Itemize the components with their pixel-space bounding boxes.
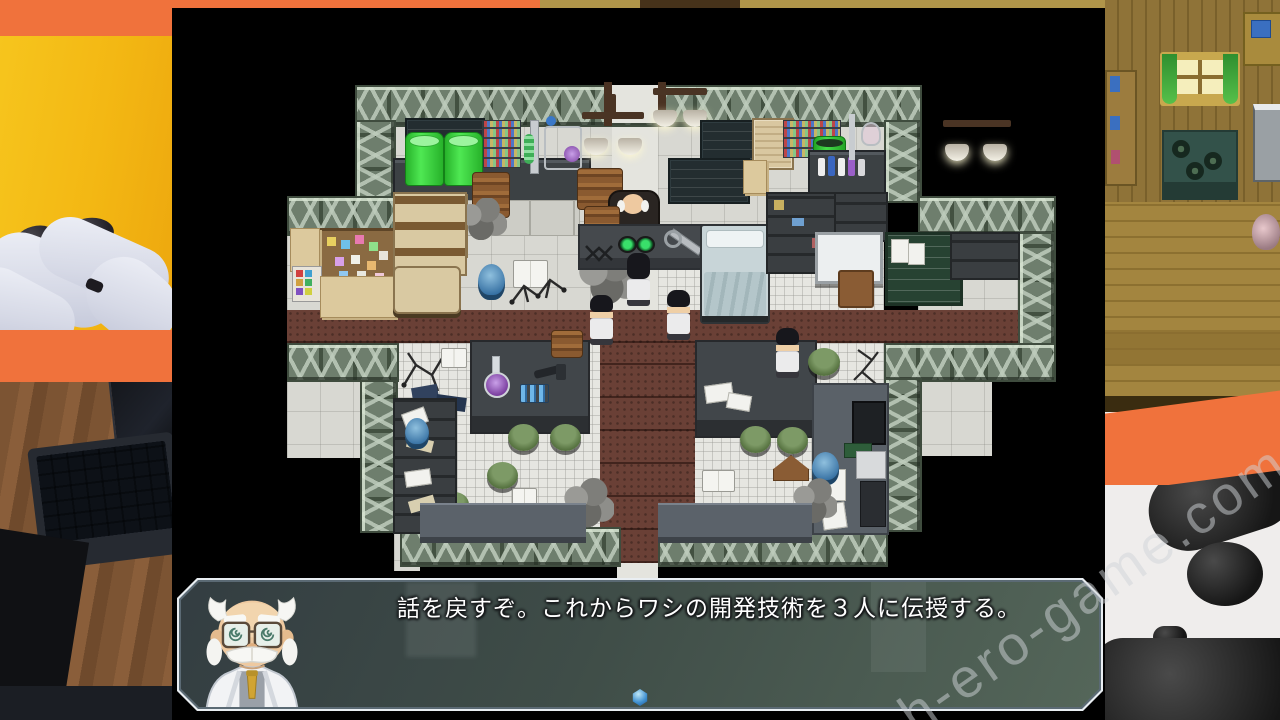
printer <box>856 451 886 479</box>
floor-left-patch <box>287 378 360 458</box>
laptop-photo <box>0 382 172 720</box>
flask-stand <box>845 114 881 166</box>
paper-pile <box>320 276 396 318</box>
bucket-2 <box>405 418 429 449</box>
window-panes <box>1176 60 1224 94</box>
retro-floor-shadow <box>1105 330 1280 364</box>
stool-6 <box>777 427 808 454</box>
top-strip-orange <box>0 0 540 8</box>
stool-2 <box>550 424 581 451</box>
recipe-cards <box>743 160 767 194</box>
open-book-2 <box>441 348 467 368</box>
open-book-4 <box>702 470 735 492</box>
bucket-1 <box>478 264 505 300</box>
wall-right-lower-ext <box>884 343 1056 382</box>
left-background <box>0 0 172 720</box>
npc-student-1 <box>627 253 650 306</box>
bench <box>393 266 461 314</box>
npc-student-3 <box>667 290 690 340</box>
orange-band <box>0 330 172 382</box>
chalkboard-3 <box>668 158 750 204</box>
retro-window <box>1160 52 1240 106</box>
wrench-tool <box>664 228 704 254</box>
wall-left-upper <box>355 120 396 203</box>
goggles <box>618 234 654 252</box>
brown-desk <box>838 270 874 308</box>
laptop-front-edge <box>0 686 172 720</box>
color-chart <box>292 266 322 302</box>
tongs <box>582 242 616 264</box>
bottle-rack-1 <box>483 120 521 168</box>
floor-right-patch <box>918 378 992 456</box>
lamp-group-left <box>582 112 644 170</box>
book-pile-3 <box>551 330 583 358</box>
stool-1 <box>508 424 539 451</box>
bw-gamepad-base <box>1105 638 1280 720</box>
stool-5 <box>740 426 771 453</box>
right-background <box>1105 0 1280 720</box>
bed <box>700 224 770 324</box>
wall-left-lower-ext <box>287 343 399 382</box>
retro-left-shelf <box>1105 70 1137 186</box>
retro-teapot <box>1252 214 1280 250</box>
npc-student-2 <box>590 295 613 345</box>
stool-7 <box>808 348 840 376</box>
wall-right-upper-ext <box>918 196 1056 236</box>
wall-right-mid <box>1018 232 1056 348</box>
pc-tower <box>860 481 886 527</box>
wall-right-lower <box>884 378 922 532</box>
stool-3 <box>487 462 518 489</box>
bookshelf <box>393 192 467 276</box>
molecule-sketch-1 <box>508 274 570 310</box>
lamp-group-right <box>943 120 1011 176</box>
speaker-portrait <box>193 588 311 707</box>
laptop-keys <box>36 440 172 543</box>
thumbnail-canvas: 話を戻すぞ。これからワシの開発技術を３人に伝授する。 h-ero-game.co… <box>0 0 1280 720</box>
counter-bottom-left <box>420 503 586 543</box>
top-strip-wood <box>540 0 1105 8</box>
dark-cabinet-3 <box>950 232 1020 280</box>
counter-bottom-right <box>658 503 812 543</box>
gamepad-photo <box>0 36 172 330</box>
lamp-group-door <box>653 88 707 142</box>
dialogue-text: 話を戻すぞ。これからワシの開発技術を３人に伝授する。 <box>397 594 1087 624</box>
professor-sprite <box>622 194 644 214</box>
curtain-left <box>1162 54 1177 104</box>
wall-right-upper <box>884 120 922 203</box>
continue-indicator-gem[interactable] <box>632 689 648 706</box>
retro-top-shelf <box>1243 12 1280 66</box>
chemistry-set <box>522 116 584 186</box>
green-vat-1 <box>405 132 444 186</box>
retro-appliance <box>1253 104 1280 182</box>
monitor <box>852 401 886 445</box>
curtain-right <box>1223 54 1238 104</box>
retro-stove <box>1162 130 1238 200</box>
npc-student-4 <box>776 328 799 378</box>
top-strip-dark <box>640 0 740 8</box>
retro-game-screenshot <box>1105 0 1280 412</box>
